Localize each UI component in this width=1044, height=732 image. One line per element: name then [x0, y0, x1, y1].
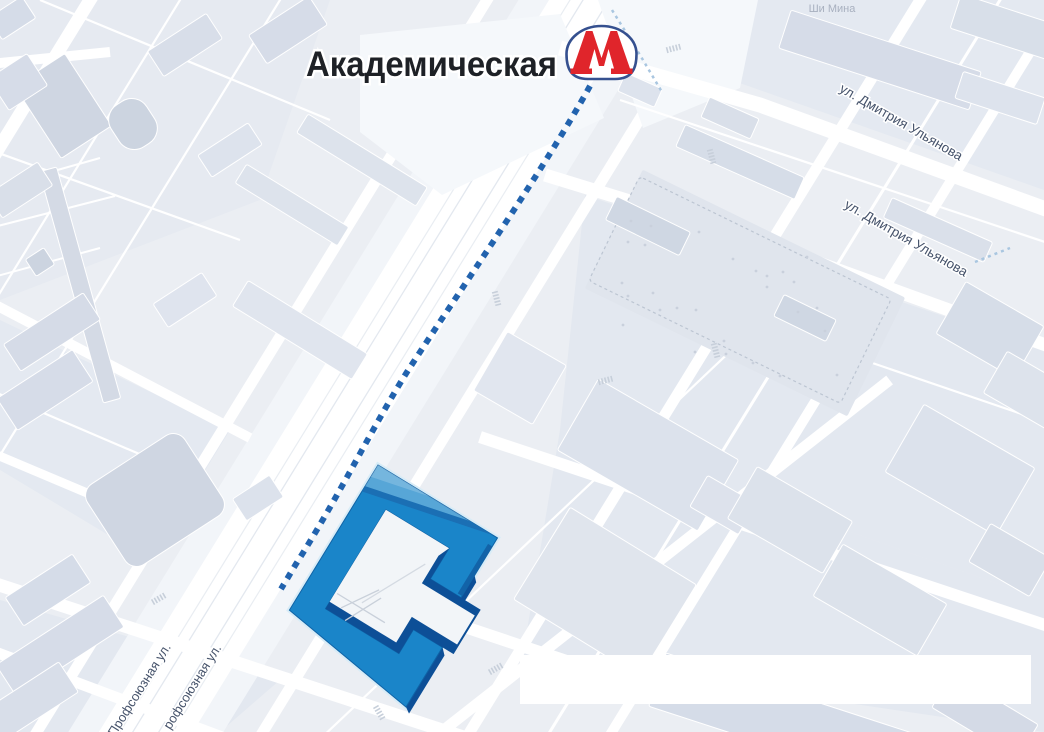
- svg-text:Ши Мина: Ши Мина: [809, 3, 857, 15]
- svg-text:Академическая: Академическая: [306, 45, 557, 84]
